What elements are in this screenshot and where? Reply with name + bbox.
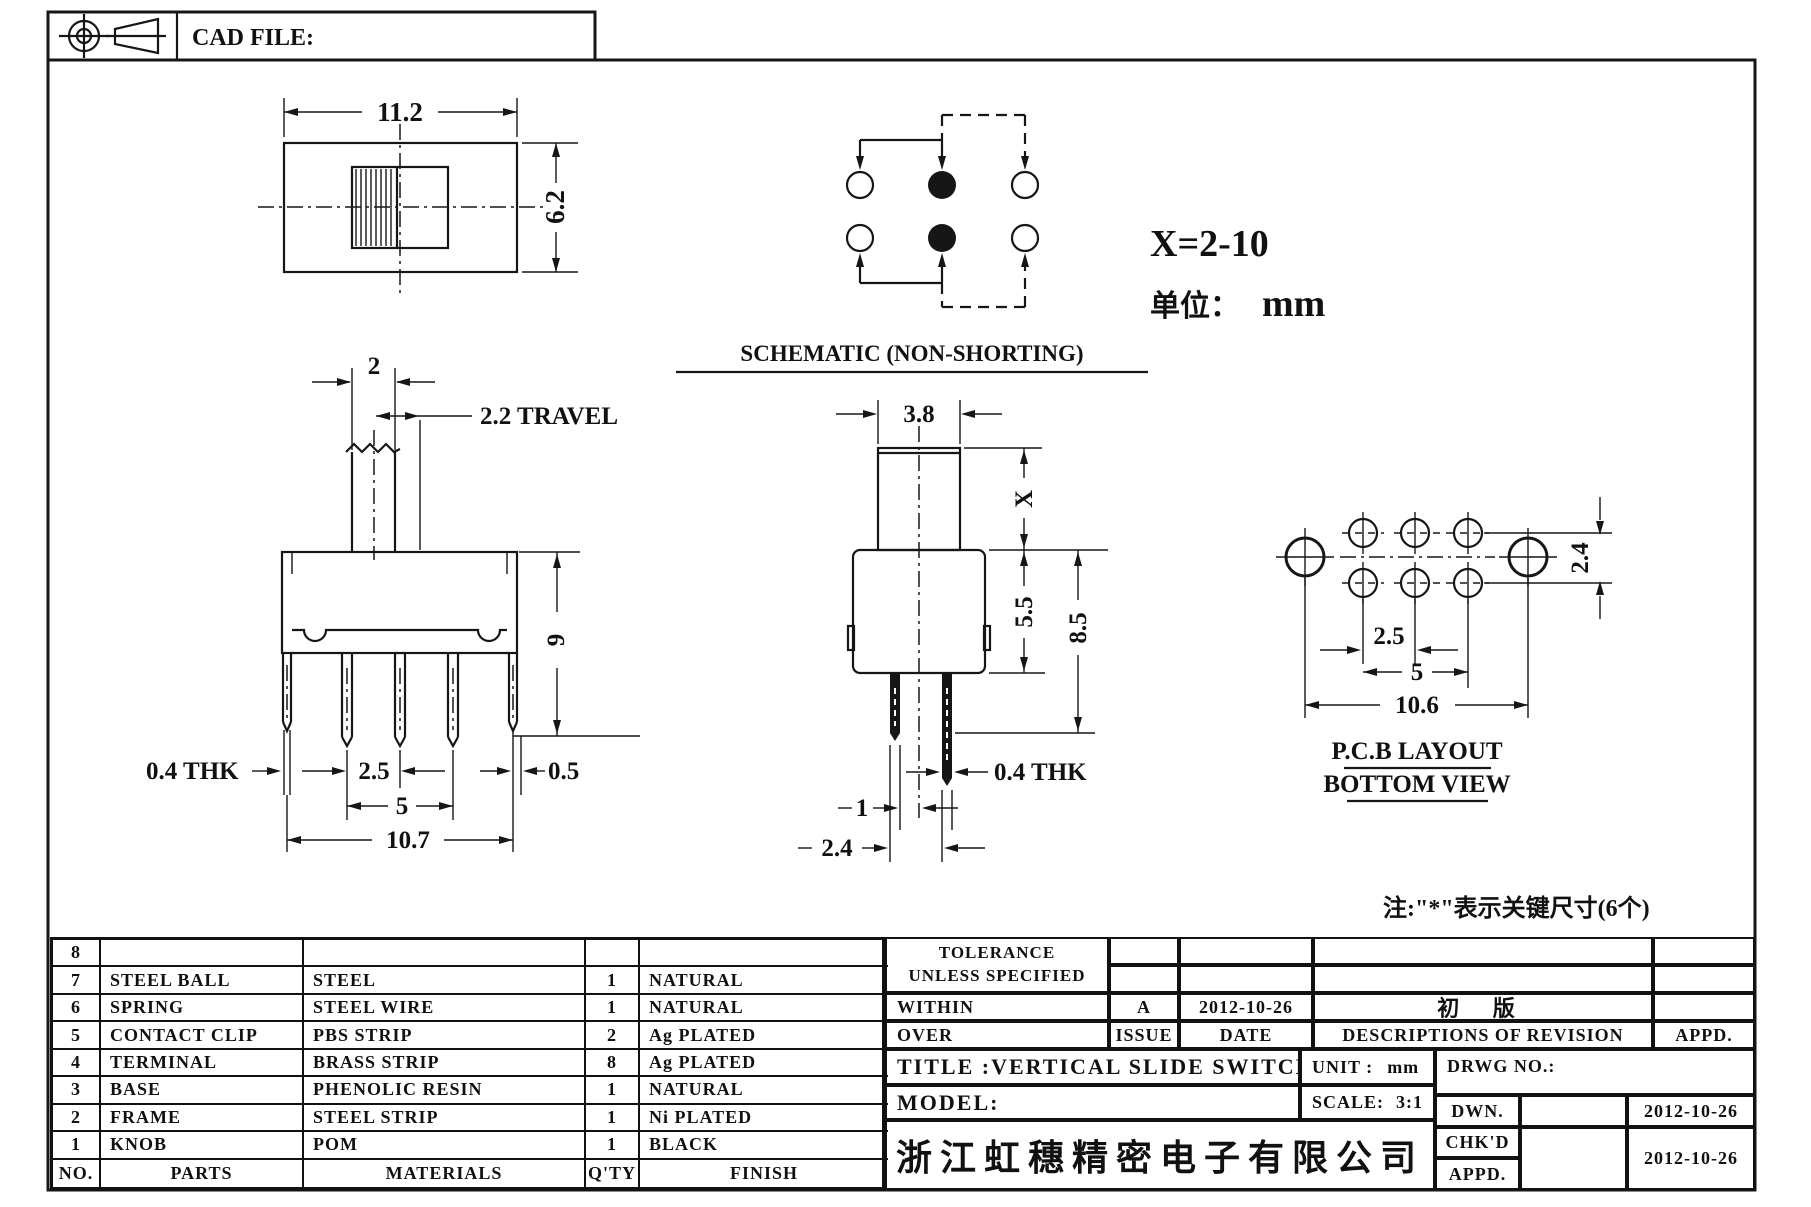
pcb-title-line2: BOTTOM VIEW — [1323, 771, 1510, 798]
cell-finish: NATURAL — [640, 1077, 888, 1104]
unit-label: UNIT : — [1312, 1057, 1373, 1078]
cell-finish: BLACK — [640, 1132, 888, 1159]
issue-value: A — [1109, 993, 1179, 1021]
dwn-date: 2012-10-26 — [1627, 1095, 1755, 1127]
header-qty: Q'TY — [586, 1160, 640, 1187]
cell-part: SPRING — [101, 995, 304, 1022]
cell-no: 1 — [53, 1132, 101, 1159]
common-pole-top — [928, 171, 956, 199]
issue-label: ISSUE — [1109, 1021, 1179, 1049]
cell-qty: 2 — [586, 1022, 640, 1049]
cell-qty: 1 — [586, 967, 640, 994]
cell-part: STEEL BALL — [101, 967, 304, 994]
cell-qty — [586, 940, 640, 967]
scale-label: SCALE: — [1312, 1092, 1384, 1113]
company-name: 浙江虹穗精密电子有限公司 — [885, 1120, 1435, 1190]
cell-no: 7 — [53, 967, 101, 994]
cell-no: 8 — [53, 940, 101, 967]
cell-part: TERMINAL — [101, 1050, 304, 1077]
revision-desc: 初 版 — [1313, 993, 1653, 1021]
dwn-label: DWN. — [1435, 1095, 1520, 1127]
cell-part: FRAME — [101, 1105, 304, 1132]
dim-side-thk: 0.4 THK — [994, 759, 1087, 786]
chkd-date: 2012-10-26 — [1627, 1127, 1755, 1190]
date-cell-empty — [1179, 965, 1313, 993]
dim-height: 9 — [543, 634, 570, 647]
revision-cell-empty — [1313, 965, 1653, 993]
dim-travel: 2.2 TRAVEL — [480, 403, 618, 430]
cell-material: PBS STRIP — [304, 1022, 586, 1049]
cell-qty: 8 — [586, 1050, 640, 1077]
dim-front-thk: 0.4 THK — [146, 758, 239, 785]
appd-cell-empty — [1653, 937, 1755, 965]
dim-body-height: 5.5 — [1011, 596, 1038, 627]
dim-row-pitch: 2.4 — [821, 835, 853, 862]
dim-pin-gap: 1 — [856, 795, 869, 822]
dim-pitch-span: 5 — [396, 793, 409, 820]
cell-part: BASE — [101, 1077, 304, 1104]
dim-pcb-row: 2.4 — [1567, 542, 1594, 574]
cell-material: BRASS STRIP — [304, 1050, 586, 1077]
header-parts: PARTS — [101, 1160, 304, 1187]
pcb-layout: 2.4 2.5 5 10.6 P.C.B LAYOUT BOTTOM VIEW — [1276, 497, 1612, 801]
pcb-title-line1: P.C.B LAYOUT — [1331, 738, 1502, 765]
issue-cell-empty — [1109, 965, 1179, 993]
cell-no: 4 — [53, 1050, 101, 1077]
dim-side-knob: 3.8 — [903, 401, 934, 428]
within-label: WITHIN — [885, 993, 1109, 1021]
schematic: SCHEMATIC (NON-SHORTING) — [676, 115, 1148, 372]
dim-pcb-pitch: 2.5 — [1373, 623, 1404, 650]
appd-label: APPD. — [1435, 1158, 1520, 1190]
chkd-value-empty — [1520, 1127, 1627, 1190]
dim-top-height: 6.2 — [540, 190, 570, 224]
title-value: VERTICAL SLIDE SWITCH — [991, 1054, 1300, 1080]
top-view: 11.2 6.2 — [258, 97, 578, 294]
chkd-label: CHK'D — [1435, 1127, 1520, 1158]
dim-body-width: 10.7 — [386, 827, 430, 854]
cell-no: 5 — [53, 1022, 101, 1049]
front-view: 2 2.2 TRAVEL 9 0.4 THK 2.5 — [146, 353, 640, 854]
appd-cell-empty — [1653, 993, 1755, 1021]
cell-qty: 1 — [586, 995, 640, 1022]
parts-table: 8 7 STEEL BALL STEEL 1 NATURAL 6 SPRING … — [50, 937, 885, 1190]
model-label: MODEL: — [885, 1085, 1300, 1120]
cell-finish — [640, 940, 888, 967]
cell-finish: Ag PLATED — [640, 1022, 888, 1049]
header-finish: FINISH — [640, 1160, 888, 1187]
dwn-value-empty — [1520, 1095, 1627, 1127]
x-range-note: X=2-10 — [1150, 223, 1269, 265]
appd-header: APPD. — [1653, 1021, 1755, 1049]
header-materials: MATERIALS — [304, 1160, 586, 1187]
issue-date: 2012-10-26 — [1179, 993, 1313, 1021]
cell-material: POM — [304, 1132, 586, 1159]
cell-finish: NATURAL — [640, 995, 888, 1022]
side-view: 3.8 X 5.5 8.5 0.4 THK 1 — [798, 400, 1108, 862]
dim-knob-width: 2 — [368, 353, 381, 380]
date-label: DATE — [1179, 1021, 1313, 1049]
dim-pin-pitch: 2.5 — [358, 758, 389, 785]
cell-finish: Ag PLATED — [640, 1050, 888, 1077]
drawing-sheet: CAD FILE: 11.2 6.2 — [0, 0, 1811, 1207]
tolerance-line2: UNLESS SPECIFIED — [908, 965, 1085, 988]
dim-pcb-span: 5 — [1411, 659, 1424, 686]
title-label: TITLE : — [897, 1054, 991, 1080]
cell-qty: 1 — [586, 1132, 640, 1159]
cell-qty: 1 — [586, 1105, 640, 1132]
cell-part: KNOB — [101, 1132, 304, 1159]
issue-cell-empty — [1109, 937, 1179, 965]
cell-qty: 1 — [586, 1077, 640, 1104]
unit-value: mm — [1387, 1057, 1419, 1078]
cell-part: CONTACT CLIP — [101, 1022, 304, 1049]
over-label: OVER — [885, 1021, 1109, 1049]
scale-value: 3:1 — [1396, 1092, 1423, 1113]
unit-value: mm — [1262, 283, 1325, 325]
tolerance-line1: TOLERANCE — [939, 942, 1055, 965]
key-note: 注:"*"表示关键尺寸(6个) — [1383, 894, 1650, 922]
dim-offset: 0.5 — [548, 758, 579, 785]
cell-material: STEEL — [304, 967, 586, 994]
projection-symbol — [59, 14, 166, 58]
revision-header: DESCRIPTIONS OF REVISION — [1313, 1021, 1653, 1049]
common-pole-bottom — [928, 224, 956, 252]
dim-top-width: 11.2 — [377, 97, 423, 127]
cell-finish: Ni PLATED — [640, 1105, 888, 1132]
cell-material: STEEL WIRE — [304, 995, 586, 1022]
revision-cell-empty — [1313, 937, 1653, 965]
cell-material — [304, 940, 586, 967]
unit-label: 单位： — [1150, 289, 1240, 323]
cell-no: 2 — [53, 1105, 101, 1132]
schematic-title: SCHEMATIC (NON-SHORTING) — [740, 341, 1083, 366]
cell-finish: NATURAL — [640, 967, 888, 994]
cell-part — [101, 940, 304, 967]
cell-material: PHENOLIC RESIN — [304, 1077, 586, 1104]
drwg-no-label: DRWG NO.: — [1435, 1049, 1755, 1095]
cad-file-label: CAD FILE: — [192, 25, 314, 51]
cell-no: 3 — [53, 1077, 101, 1104]
cell-material: STEEL STRIP — [304, 1105, 586, 1132]
cell-no: 6 — [53, 995, 101, 1022]
appd-cell-empty — [1653, 965, 1755, 993]
date-cell-empty — [1179, 937, 1313, 965]
dim-pcb-mount: 10.6 — [1395, 692, 1439, 719]
header-no: NO. — [53, 1160, 101, 1187]
dim-total-height: 8.5 — [1065, 612, 1092, 643]
dim-knob-height: X — [1011, 490, 1038, 508]
